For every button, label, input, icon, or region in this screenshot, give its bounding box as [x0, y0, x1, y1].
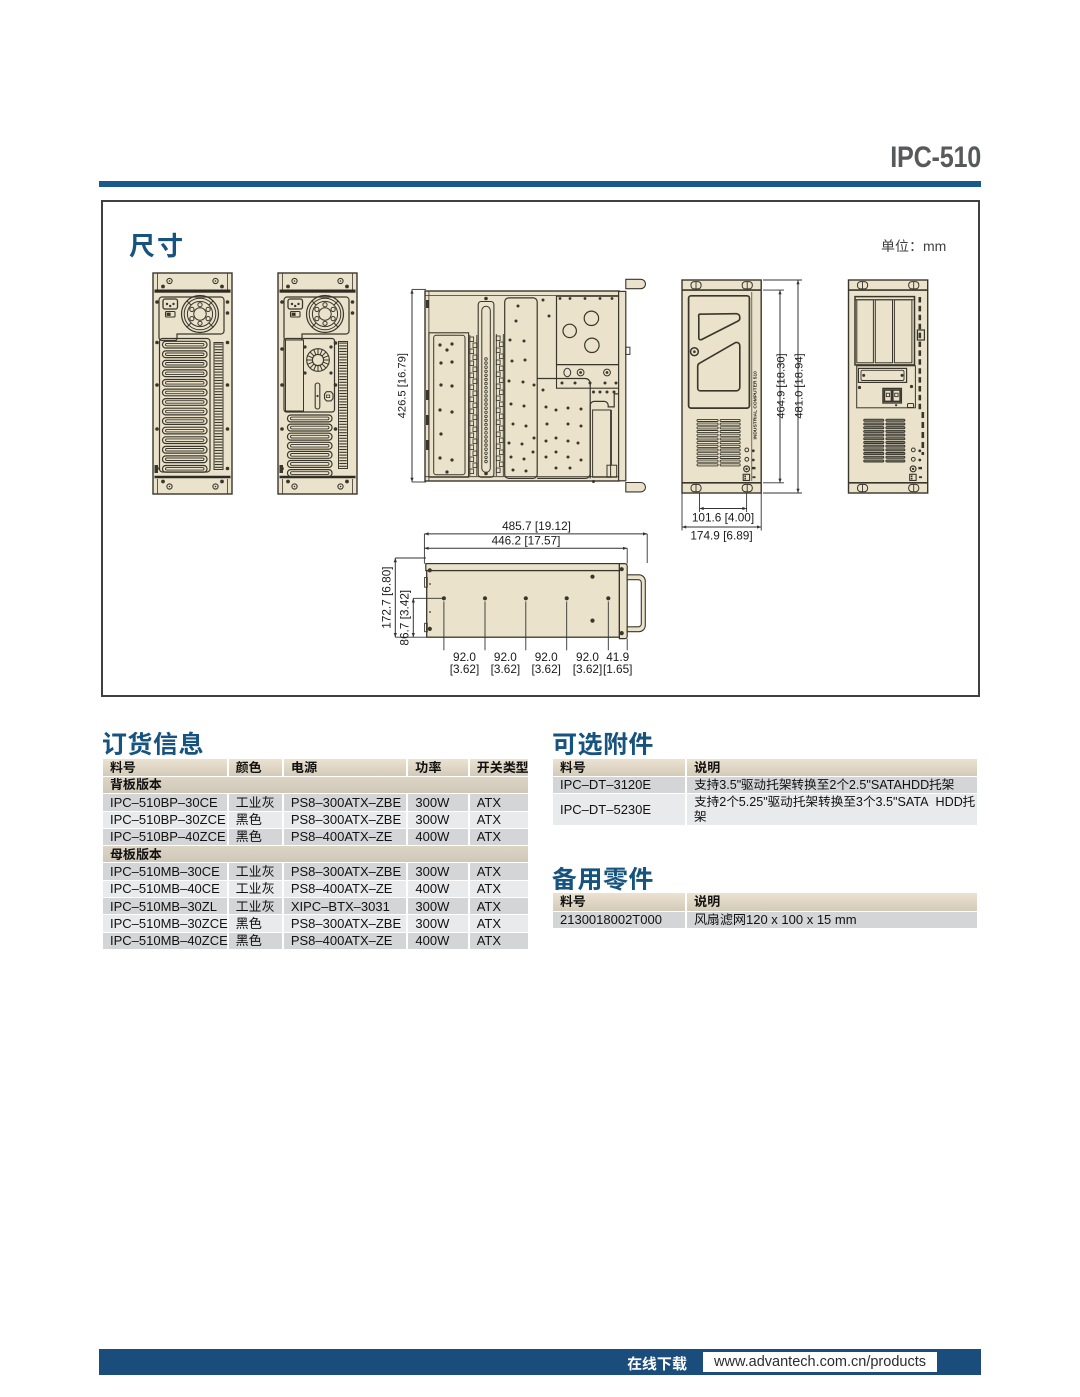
svg-text:485.7 [19.12]: 485.7 [19.12]	[502, 519, 571, 533]
svg-text:[3.62]: [3.62]	[491, 662, 521, 676]
svg-text:464.9 [18.30]: 464.9 [18.30]	[776, 353, 788, 418]
svg-text:101.6 [4.00]: 101.6 [4.00]	[692, 511, 754, 525]
svg-text:[1.65]: [1.65]	[603, 662, 633, 676]
svg-text:[3.62]: [3.62]	[450, 662, 480, 676]
svg-text:174.9 [6.89]: 174.9 [6.89]	[690, 529, 752, 543]
svg-text:172.7 [6.80]: 172.7 [6.80]	[379, 566, 393, 628]
svg-text:INDUSTRIAL COMPUTER 510: INDUSTRIAL COMPUTER 510	[753, 371, 759, 440]
svg-text:[3.62]: [3.62]	[573, 662, 603, 676]
svg-text:426.5 [16.79]: 426.5 [16.79]	[397, 353, 409, 418]
svg-text:[3.62]: [3.62]	[531, 662, 561, 676]
svg-text:481.0 [18.94]: 481.0 [18.94]	[794, 353, 806, 418]
svg-text:86.7 [3.42]: 86.7 [3.42]	[397, 590, 411, 646]
svg-text:446.2 [17.57]: 446.2 [17.57]	[492, 534, 561, 548]
